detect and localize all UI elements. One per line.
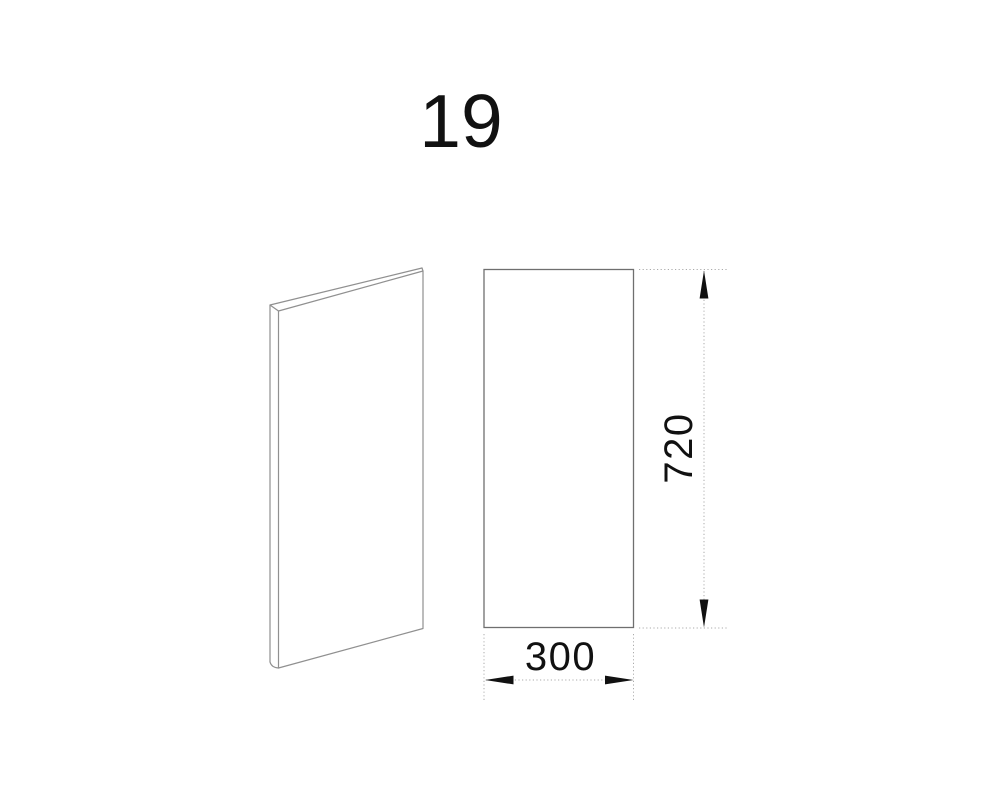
arrow-right-icon [605,676,634,685]
panel-front-view [484,270,634,628]
panel-top-right-edge [422,268,423,271]
panel-front-rectangle [484,270,634,628]
arrow-down-icon [700,600,709,628]
drawing-canvas: 19 720 [0,0,1000,800]
panel-back-edges [270,268,422,662]
width-dimension: 300 [484,634,634,701]
height-dimension-label: 720 [657,412,701,483]
panel-top-left-edge [270,305,279,311]
part-number-title: 19 [419,79,502,163]
technical-drawing: 19 720 [0,0,1000,800]
width-dimension-label: 300 [525,635,596,679]
arrow-up-icon [700,271,709,299]
arrow-left-icon [485,676,514,685]
panel-front-face [279,271,424,668]
height-dimension: 720 [639,270,727,629]
panel-bottom-edge [270,662,279,668]
panel-3d-view [270,268,423,668]
